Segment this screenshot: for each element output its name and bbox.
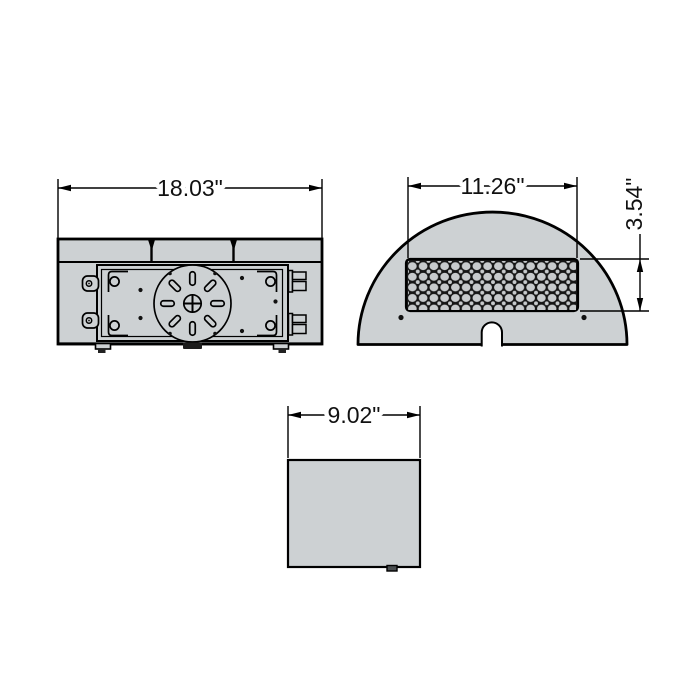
cable-notch <box>482 322 502 346</box>
screw-hole <box>240 276 244 280</box>
latch-clip <box>293 282 307 291</box>
foot <box>274 344 289 350</box>
bottom-view: 9.02" <box>288 402 420 571</box>
lens-height-label: 3.54" <box>621 178 647 231</box>
center-foot <box>183 343 202 350</box>
radial-slot <box>190 272 196 286</box>
back-view: 18.03" <box>58 175 322 353</box>
latch-clip <box>293 272 307 280</box>
foot-pad <box>279 349 287 353</box>
arrowhead-up-icon <box>637 259 643 272</box>
front-view: 11.26" 3.54" <box>358 173 649 347</box>
screw-hole <box>168 272 172 276</box>
arrowhead-left-icon <box>288 412 301 418</box>
screw-hole <box>581 315 586 320</box>
latch-clip <box>293 315 307 323</box>
bottom-width-dimension: 9.02" <box>288 402 420 458</box>
radial-slot <box>190 322 196 336</box>
technical-drawing-page: 18.03" <box>0 0 700 700</box>
bottom-width-label: 9.02" <box>328 402 381 428</box>
screw-hole <box>213 332 217 336</box>
screw-hole <box>138 288 142 292</box>
radial-slot <box>211 301 225 307</box>
foot-tab <box>387 566 397 572</box>
drawing-canvas: 18.03" <box>0 0 700 700</box>
latch-clip <box>293 325 307 334</box>
screw-hole <box>138 316 142 320</box>
radial-slot <box>161 301 175 307</box>
screw-hole <box>273 299 277 303</box>
arrowhead-left-icon <box>58 185 71 191</box>
arrowhead-left-icon <box>408 183 421 189</box>
arrowhead-down-icon <box>637 298 643 311</box>
foot-pad <box>98 349 106 353</box>
screw-hole <box>398 315 403 320</box>
screw-hole <box>240 329 244 333</box>
back-width-label: 18.03" <box>157 175 223 201</box>
screw-hole <box>168 332 172 336</box>
back-width-dimension: 18.03" <box>58 175 322 240</box>
led-array <box>408 261 576 310</box>
arrowhead-right-icon <box>407 412 420 418</box>
tab-hole-center <box>88 320 90 322</box>
arrowhead-right-icon <box>309 185 322 191</box>
screw-hole <box>213 272 217 276</box>
foot <box>96 344 111 350</box>
housing-profile <box>288 460 420 567</box>
knockout-plate <box>154 265 231 342</box>
tab-hole-center <box>88 283 90 285</box>
arrowhead-right-icon <box>564 183 577 189</box>
front-width-label: 11.26" <box>460 173 524 199</box>
